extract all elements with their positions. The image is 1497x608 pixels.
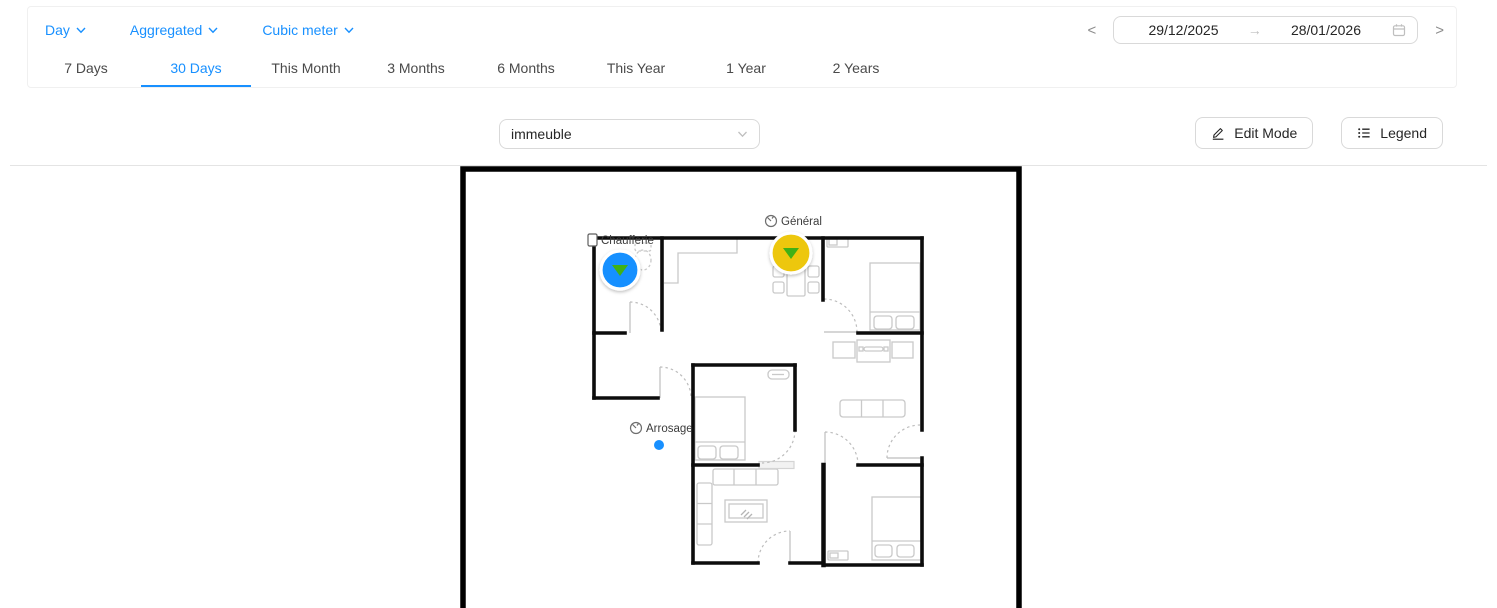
legend-button[interactable]: Legend bbox=[1341, 117, 1443, 149]
chevron-down-icon bbox=[737, 131, 748, 138]
meter-box-icon bbox=[588, 234, 597, 246]
swap-right-icon: → bbox=[1242, 22, 1268, 38]
calendar-icon bbox=[1392, 23, 1406, 37]
prev-period-button[interactable]: < bbox=[1083, 21, 1100, 40]
plan-toolbar: Edit Mode Legend bbox=[1195, 117, 1443, 149]
unit-dropdown-label: Cubic meter bbox=[262, 22, 337, 38]
aggregation-dropdown-label: Aggregated bbox=[130, 22, 202, 38]
legend-label: Legend bbox=[1380, 125, 1427, 141]
building-frame bbox=[463, 169, 1019, 608]
filters-card: Day Aggregated Cubic meter < 29/12/2025 … bbox=[27, 6, 1457, 88]
edit-mode-button[interactable]: Edit Mode bbox=[1195, 117, 1313, 149]
building-select-value: immeuble bbox=[511, 126, 572, 142]
period-dropdown[interactable]: Day bbox=[45, 22, 86, 38]
building-select[interactable]: immeuble bbox=[499, 119, 760, 149]
meter-name: Général bbox=[781, 216, 822, 228]
tab-this-month[interactable]: This Month bbox=[251, 51, 361, 87]
tab-1-year[interactable]: 1 Year bbox=[691, 51, 801, 87]
aggregation-dropdown[interactable]: Aggregated bbox=[130, 22, 218, 38]
tab-30-days[interactable]: 30 Days bbox=[141, 51, 251, 87]
filter-row: Day Aggregated Cubic meter < 29/12/2025 … bbox=[28, 7, 1456, 53]
next-period-button[interactable]: > bbox=[1431, 21, 1448, 40]
date-navigation: < 29/12/2025 → 28/01/2026 > bbox=[1083, 16, 1448, 44]
meter-marker-chaufferie[interactable] bbox=[601, 251, 639, 289]
chevron-down-icon bbox=[344, 27, 354, 34]
chevron-down-icon bbox=[208, 27, 218, 34]
meter-marker-arrosage[interactable] bbox=[652, 438, 666, 452]
tab-7-days[interactable]: 7 Days bbox=[31, 51, 141, 87]
range-start-value[interactable]: 29/12/2025 bbox=[1125, 22, 1242, 38]
tab-2-years[interactable]: 2 Years bbox=[801, 51, 911, 87]
tab-this-year[interactable]: This Year bbox=[581, 51, 691, 87]
floorplan-canvas[interactable]: Général Chaufferie Arrosage bbox=[460, 166, 1022, 608]
legend-list-icon bbox=[1357, 126, 1371, 140]
range-end-value[interactable]: 28/01/2026 bbox=[1268, 22, 1385, 38]
period-tabs: 7 Days 30 Days This Month 3 Months 6 Mon… bbox=[31, 51, 911, 87]
unit-dropdown[interactable]: Cubic meter bbox=[262, 22, 353, 38]
chevron-down-icon bbox=[76, 27, 86, 34]
tab-3-months[interactable]: 3 Months bbox=[361, 51, 471, 87]
edit-mode-label: Edit Mode bbox=[1234, 125, 1297, 141]
date-range-picker[interactable]: 29/12/2025 → 28/01/2026 bbox=[1113, 16, 1418, 44]
floorplan-svg: Général Chaufferie Arrosage bbox=[460, 166, 1022, 608]
meter-marker-general[interactable] bbox=[771, 233, 811, 273]
period-dropdown-label: Day bbox=[45, 22, 70, 38]
edit-pencil-icon bbox=[1211, 126, 1225, 140]
meter-name: Arrosage bbox=[646, 423, 693, 435]
meter-name: Chaufferie bbox=[601, 235, 654, 247]
tab-6-months[interactable]: 6 Months bbox=[471, 51, 581, 87]
energy-dashboard: { "header": { "filters": [ {"label": "Da… bbox=[0, 0, 1497, 608]
